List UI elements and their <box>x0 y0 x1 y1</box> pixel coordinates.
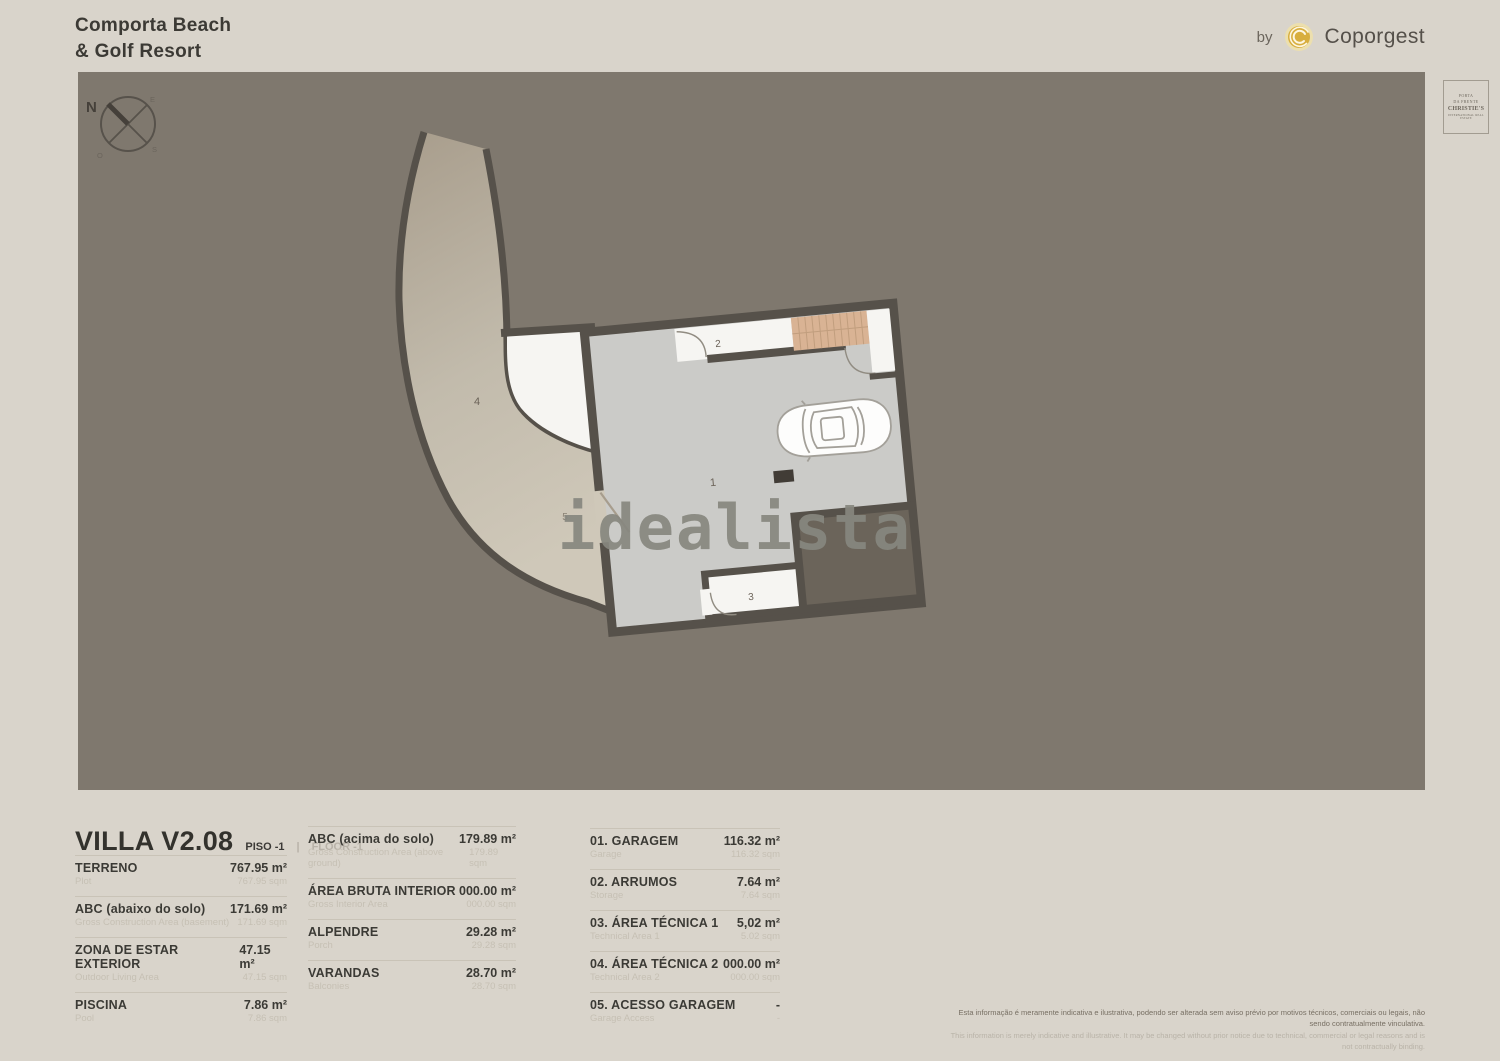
area-sublabel: Storage <box>590 890 623 901</box>
area-value: 767.95 m² <box>230 861 287 875</box>
area-row: VARANDAS28.70 m² Balconies28.70 sqm <box>308 960 516 1001</box>
christies-affiliate-line1: PORTA <box>1459 94 1474 99</box>
area-subvalue: 28.70 sqm <box>472 981 516 992</box>
areas-column-3: 01. GARAGEM116.32 m² Garage116.32 sqm 02… <box>590 828 780 1033</box>
area-row: 02. ARRUMOS7.64 m² Storage7.64 sqm <box>590 869 780 910</box>
coporgest-logo-icon <box>1282 20 1316 54</box>
area-label: TERRENO <box>75 861 138 875</box>
area-row: ABC (acima do solo)179.89 m² Gross Const… <box>308 826 516 878</box>
floor-plan-canvas: N E S O <box>78 72 1425 790</box>
area-sublabel: Outdoor Living Area <box>75 972 159 983</box>
compass-west-label: O <box>97 151 103 160</box>
christies-name: CHRISTIE'S <box>1448 106 1484 112</box>
area-value: 000.00 m² <box>723 957 780 971</box>
project-title-line1: Comporta Beach <box>75 13 231 39</box>
area-row: ALPENDRE29.28 m² Porch29.28 sqm <box>308 919 516 960</box>
area-sublabel: Technical Area 2 <box>590 972 660 983</box>
area-subvalue: 767.95 sqm <box>237 876 287 887</box>
developer-brand: by Coporgest <box>1257 20 1425 54</box>
area-subvalue: 000.00 sqm <box>466 899 516 910</box>
area-label: 03. ÁREA TÉCNICA 1 <box>590 916 718 930</box>
area-label: ÁREA BRUTA INTERIOR <box>308 884 456 898</box>
legal-disclaimer: Esta informação é meramente indicativa e… <box>945 1007 1425 1052</box>
area-sublabel: Plot <box>75 876 91 887</box>
area-label: 02. ARRUMOS <box>590 875 677 889</box>
area-row: TERRENO767.95 m² Plot767.95 sqm <box>75 855 287 896</box>
area-row: ZONA DE ESTAR EXTERIOR47.15 m² Outdoor L… <box>75 937 287 992</box>
compass-north-label: N <box>86 99 97 116</box>
area-sublabel: Gross Construction Area (above ground) <box>308 847 469 869</box>
area-value: 116.32 m² <box>724 834 780 848</box>
area-label: ABC (abaixo do solo) <box>75 902 205 916</box>
area-value: 47.15 m² <box>239 943 287 971</box>
area-value: - <box>776 998 780 1012</box>
area-sublabel: Pool <box>75 1013 94 1024</box>
floor-plan-drawing: N E S O <box>78 72 1425 790</box>
area-row: 03. ÁREA TÉCNICA 15,02 m² Technical Area… <box>590 910 780 951</box>
area-sublabel: Garage Access <box>590 1013 654 1024</box>
disclaimer-pt: Esta informação é meramente indicativa e… <box>945 1007 1425 1030</box>
area-sublabel: Porch <box>308 940 333 951</box>
area-subvalue: 7.86 sqm <box>248 1013 287 1024</box>
areas-column-2: ABC (acima do solo)179.89 m² Gross Const… <box>308 826 516 1001</box>
area-label: 01. GARAGEM <box>590 834 678 848</box>
area-subvalue: - <box>777 1013 780 1024</box>
area-row: 05. ACESSO GARAGEM- Garage Access- <box>590 992 780 1033</box>
area-sublabel: Gross Interior Area <box>308 899 388 910</box>
area-value: 171.69 m² <box>230 902 287 916</box>
project-title: Comporta Beach & Golf Resort <box>75 13 231 64</box>
project-title-line2: & Golf Resort <box>75 39 231 65</box>
area-label: 05. ACESSO GARAGEM <box>590 998 736 1012</box>
area-value: 7.64 m² <box>737 875 780 889</box>
compass-east-label: E <box>150 95 155 104</box>
disclaimer-en: This information is merely indicative an… <box>945 1030 1425 1053</box>
area-row: 01. GARAGEM116.32 m² Garage116.32 sqm <box>590 828 780 869</box>
area-sublabel: Technical Area 1 <box>590 931 660 942</box>
floor-label-pt: PISO -1 <box>245 841 284 853</box>
area-label: ZONA DE ESTAR EXTERIOR <box>75 943 239 971</box>
area-label: PISCINA <box>75 998 127 1012</box>
christies-affiliate-line2: DA FRENTE <box>1453 100 1478 105</box>
area-subvalue: 7.64 sqm <box>741 890 780 901</box>
idealista-watermark: idealista <box>558 497 912 559</box>
area-sublabel: Gross Construction Area (basement) <box>75 917 229 928</box>
area-label: ABC (acima do solo) <box>308 832 434 846</box>
room-label-1: 1 <box>709 477 716 490</box>
area-label: ALPENDRE <box>308 925 378 939</box>
area-value: 29.28 m² <box>466 925 516 939</box>
brand-name: Coporgest <box>1325 25 1426 49</box>
area-value: 28.70 m² <box>466 966 516 980</box>
area-subvalue: 47.15 sqm <box>243 972 287 983</box>
area-value: 000.00 m² <box>459 884 516 898</box>
area-row: PISCINA7.86 m² Pool7.86 sqm <box>75 992 287 1033</box>
area-subvalue: 000.00 sqm <box>730 972 780 983</box>
area-row: ÁREA BRUTA INTERIOR000.00 m² Gross Inter… <box>308 878 516 919</box>
by-label: by <box>1257 29 1273 46</box>
area-label: VARANDAS <box>308 966 380 980</box>
floor-equipment <box>773 469 794 483</box>
area-value: 5,02 m² <box>737 916 780 930</box>
areas-column-1: TERRENO767.95 m² Plot767.95 sqm ABC (aba… <box>75 855 287 1033</box>
building-footprint: 1 2 3 <box>578 303 921 632</box>
area-subvalue: 29.28 sqm <box>472 940 516 951</box>
area-subvalue: 171.69 sqm <box>237 917 287 928</box>
villa-title: VILLA V2.08 <box>75 826 233 857</box>
area-subvalue: 179.89 sqm <box>469 847 516 869</box>
christies-badge: PORTA DA FRENTE CHRISTIE'S INTERNATIONAL… <box>1443 80 1489 134</box>
area-row: 04. ÁREA TÉCNICA 2000.00 m² Technical Ar… <box>590 951 780 992</box>
area-sublabel: Balconies <box>308 981 349 992</box>
area-value: 7.86 m² <box>244 998 287 1012</box>
compass-south-label: S <box>152 145 157 154</box>
compass-icon: N E S O <box>86 95 157 160</box>
area-row: ABC (abaixo do solo)171.69 m² Gross Cons… <box>75 896 287 937</box>
christies-tagline: INTERNATIONAL REAL ESTATE <box>1444 114 1488 120</box>
area-subvalue: 116.32 sqm <box>731 849 780 860</box>
area-label: 04. ÁREA TÉCNICA 2 <box>590 957 718 971</box>
area-subvalue: 5.02 sqm <box>741 931 780 942</box>
floor-label-separator: | <box>296 841 299 853</box>
room-label-4: 4 <box>474 396 480 408</box>
area-sublabel: Garage <box>590 849 622 860</box>
area-value: 179.89 m² <box>459 832 516 846</box>
